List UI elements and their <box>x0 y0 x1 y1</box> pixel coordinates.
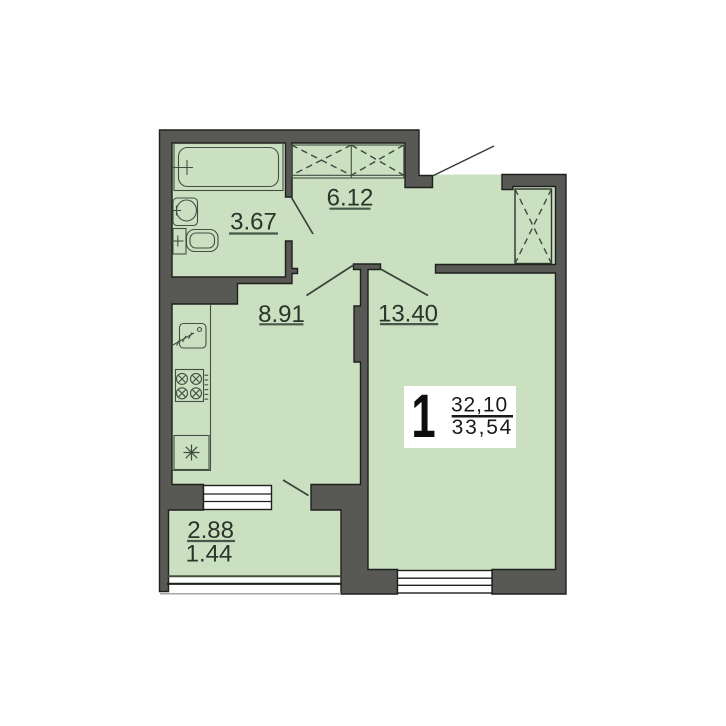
svg-text:3.67: 3.67 <box>230 209 277 236</box>
svg-text:6.12: 6.12 <box>327 185 374 212</box>
svg-text:1.44: 1.44 <box>186 541 233 568</box>
svg-text:1: 1 <box>411 383 435 451</box>
svg-text:33,54: 33,54 <box>452 416 514 439</box>
svg-text:32,10: 32,10 <box>451 394 508 417</box>
